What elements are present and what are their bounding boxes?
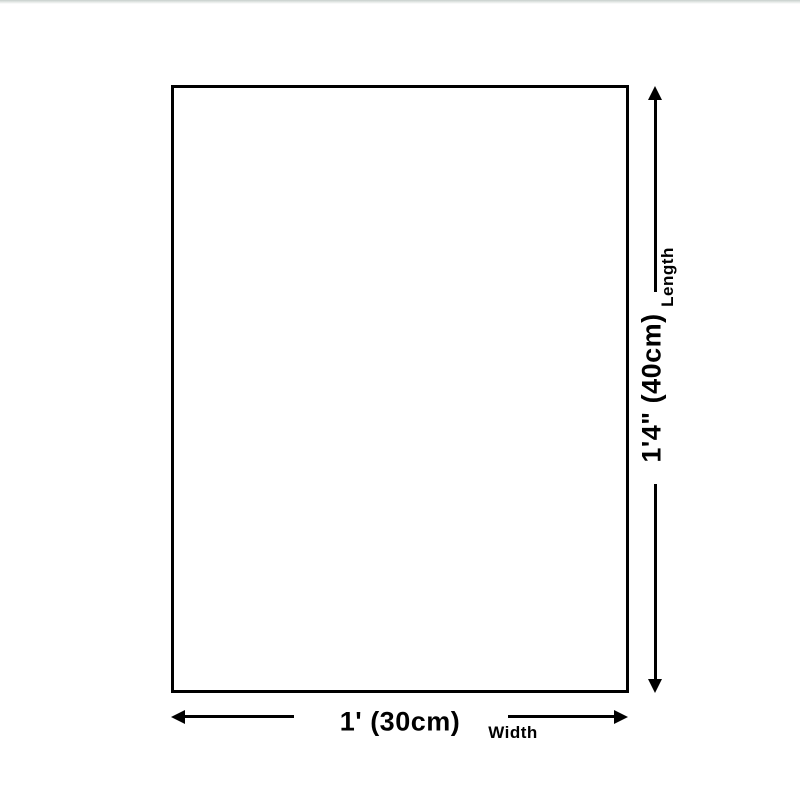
length-dimension-line-upper bbox=[654, 98, 657, 292]
width-dimension-line-right bbox=[508, 715, 615, 718]
width-dimension-line-left bbox=[184, 715, 294, 718]
arrow-down-icon bbox=[648, 679, 662, 693]
arrow-right-icon bbox=[614, 710, 628, 724]
product-outline bbox=[171, 85, 629, 693]
top-border-strip bbox=[0, 0, 800, 4]
width-axis-label: Width bbox=[488, 723, 538, 743]
arrow-left-icon bbox=[171, 710, 185, 724]
size-diagram: 1'4" (40cm) Length 1' (30cm) Width bbox=[0, 0, 800, 800]
length-axis-label: Length bbox=[658, 247, 678, 307]
width-value-label: 1' (30cm) bbox=[340, 707, 460, 738]
length-value-label: 1'4" (40cm) bbox=[637, 313, 668, 462]
length-dimension-line-lower bbox=[654, 484, 657, 681]
